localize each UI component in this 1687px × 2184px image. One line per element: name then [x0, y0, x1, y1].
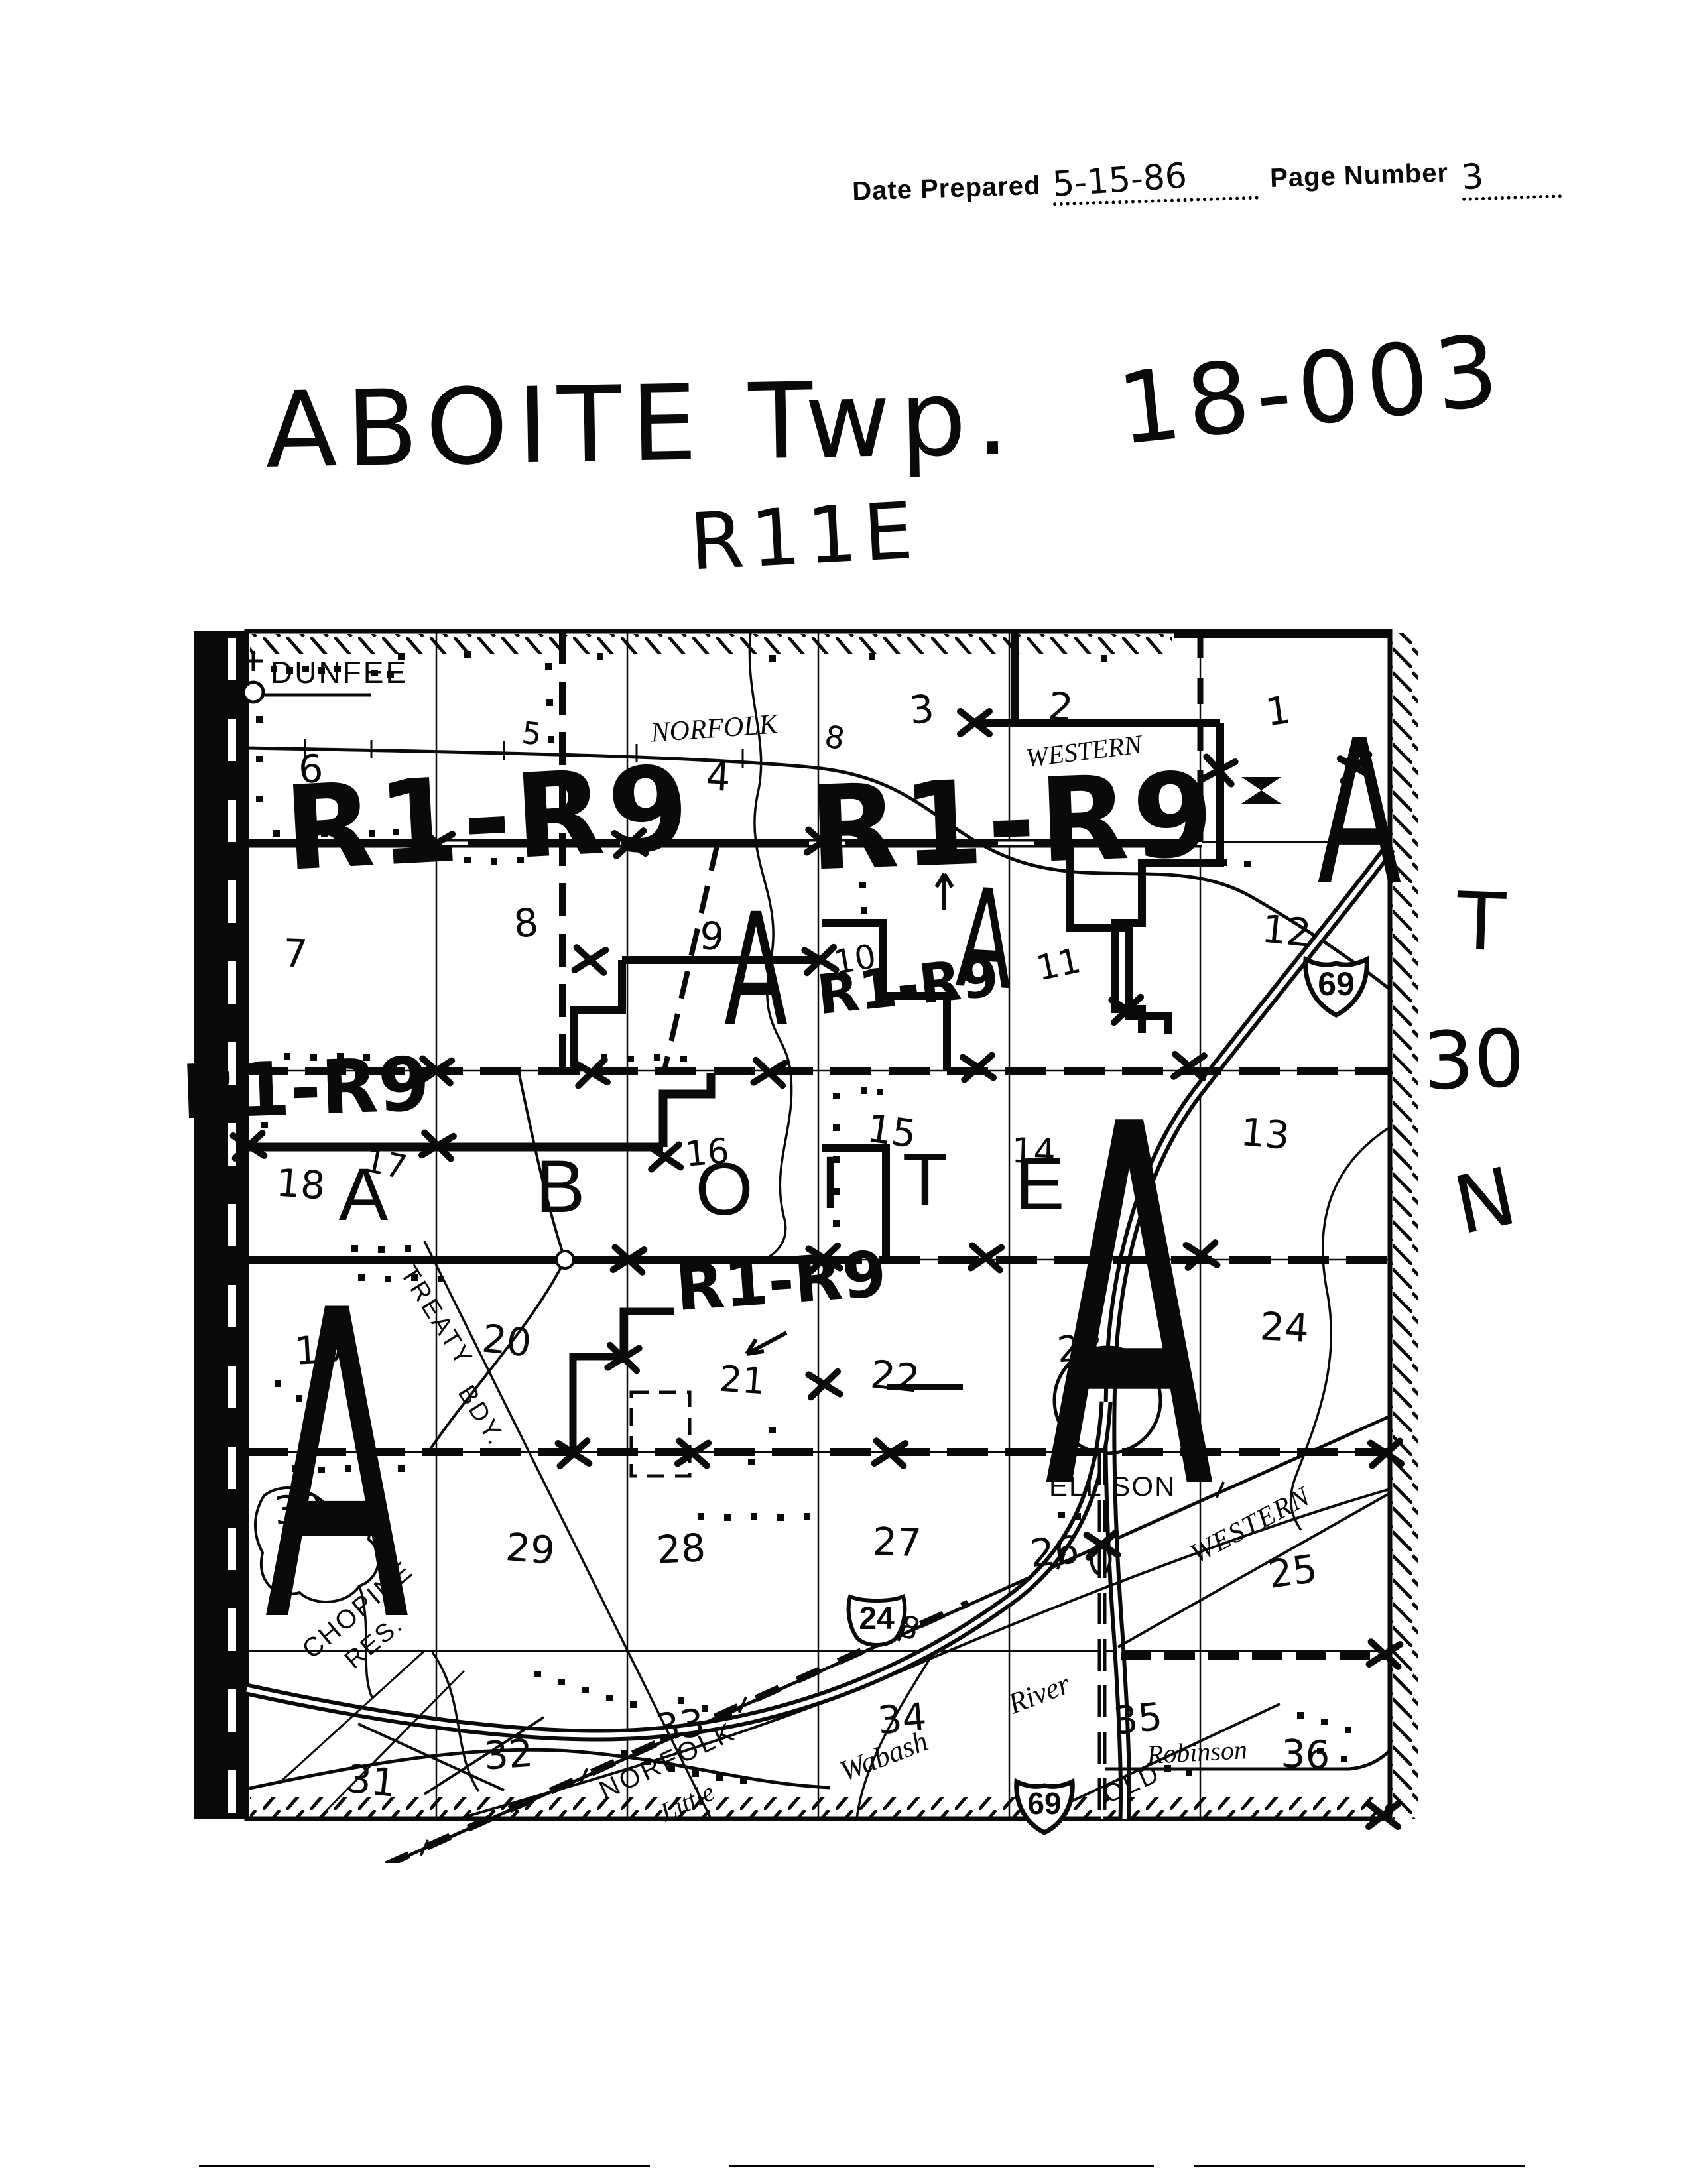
township-letter: O [695, 1148, 753, 1231]
township-letter: T [903, 1138, 948, 1221]
section-number: 24 [1259, 1304, 1310, 1351]
township-letter: A [339, 1153, 389, 1236]
section-number: 5 [520, 715, 543, 753]
section-number: 32 [482, 1730, 534, 1779]
section-number: 12 [1260, 906, 1314, 955]
range-marker-n: N [1446, 1150, 1524, 1253]
page-number-value: 3 [1460, 156, 1485, 198]
township-code: 18-003 [1113, 313, 1510, 467]
zoning-label-r1r9: R1-R9 [281, 741, 696, 897]
shield-number: 69 [1318, 965, 1355, 1002]
section-number: 1 [1263, 687, 1293, 735]
map-title: ABOITE Twp.18-003 R11E [265, 363, 1505, 582]
township-range: R11E [688, 485, 911, 587]
big-letter-a: A [1317, 697, 1401, 929]
road-number-8: 8 [822, 718, 847, 757]
scan-artifact-line [199, 2165, 1525, 2167]
section-number: 31 [345, 1756, 399, 1805]
section-number: 2 [1046, 684, 1075, 731]
section-number: 20 [480, 1315, 534, 1365]
range-marker-t: T [1454, 876, 1507, 970]
range-marker-30: 30 [1422, 1012, 1525, 1108]
shield-number: 69 [1027, 1786, 1061, 1821]
section-number: 25 [1265, 1546, 1320, 1597]
section-number: 13 [1239, 1109, 1291, 1158]
section-number: 3 [907, 686, 936, 733]
page-number-label: Page Number [1270, 158, 1449, 193]
dunfee-town-circle [243, 682, 263, 702]
section-number: 36 [1281, 1731, 1331, 1778]
section-number: 9 [698, 913, 726, 959]
section-number: 7 [282, 930, 308, 976]
top-hatch [250, 634, 1172, 654]
township-name: ABOITE Twp. [264, 357, 1019, 492]
scanned-plat-page: Date Prepared5-15-86Page Number3 ABOITE … [0, 0, 1687, 2184]
treaty-boundary-label: BDY. [452, 1380, 511, 1451]
interstate-69-shield-bottom: 69 [1017, 1782, 1073, 1833]
big-letter-a: A [724, 880, 788, 1062]
township-letter: B [536, 1145, 586, 1228]
section-number: 18 [275, 1160, 326, 1209]
zoning-label-r1r9: R1-R9 [186, 1042, 431, 1136]
section-number: 29 [504, 1524, 556, 1573]
date-prepared-label: Date Prepared [852, 171, 1041, 206]
township-letter: E [1015, 1142, 1065, 1225]
zoning-label-r1r9: R1-R9 [673, 1238, 889, 1325]
page-header: Date Prepared5-15-86Page Number3 [851, 147, 1562, 212]
shield-number: 24 [859, 1601, 895, 1636]
section-number: 21 [718, 1358, 767, 1403]
date-prepared-value: 5-15-86 [1051, 156, 1188, 204]
annotation-arrow-icon [747, 1333, 786, 1354]
section-number: 8 [512, 900, 540, 947]
river-label-river: River [1003, 1667, 1075, 1721]
section-number: 4 [705, 754, 731, 800]
township-letter: I [820, 1141, 840, 1224]
big-letter-a: A [953, 859, 1017, 1020]
interstate-69-shield: 69 [1306, 959, 1367, 1015]
place-label-ellison: ELLISON [1049, 1471, 1176, 1502]
road-label-robinson: Robinson [1146, 1734, 1248, 1770]
section-number: 28 [655, 1525, 706, 1573]
section-number: 11 [1033, 941, 1084, 989]
us-24-shield: 24 [849, 1597, 905, 1645]
section-number: 22 [869, 1351, 922, 1401]
giant-letter-a: A [1044, 1020, 1216, 1599]
binding-bar [194, 631, 247, 1819]
interchange-bowtie-icon [1241, 777, 1281, 804]
township-range-marker: T 30 N [1422, 876, 1525, 1253]
section-number: 35 [1111, 1693, 1165, 1743]
township-map: 6 5 4 3 2 1 7 8 9 10 11 12 18 17 16 15 1… [186, 617, 1525, 1863]
section-number: 27 [872, 1519, 922, 1566]
place-label-dunfee: DUNFEE [271, 655, 408, 690]
